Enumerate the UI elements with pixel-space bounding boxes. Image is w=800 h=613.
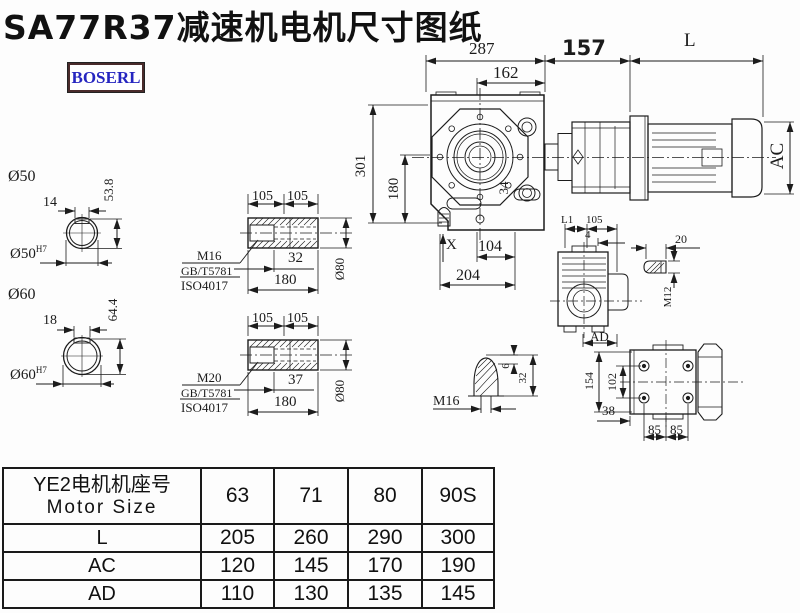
col-71: 71	[274, 468, 348, 524]
dim-shaft2-37: 37	[288, 373, 303, 388]
cell-L-80: 290	[348, 524, 422, 552]
dim-L: L	[684, 31, 696, 50]
table-row-AC: AC 120 145 170 190	[3, 552, 494, 580]
dim-key18: 18	[43, 314, 57, 328]
dim-154: 154	[582, 361, 596, 401]
dim-shaft2-105b: 105	[287, 312, 308, 326]
dim-shaft1-105a: 105	[252, 190, 273, 204]
cell-AD-90s: 145	[422, 580, 494, 608]
table-row-AD: AD 110 130 135 145	[3, 580, 494, 608]
callout-gbt5781-1: GB/T5781	[181, 265, 232, 277]
dim-shaft1-180: 180	[274, 273, 297, 288]
row-label-L: L	[3, 524, 201, 552]
dim-102: 102	[605, 362, 619, 402]
dim-287: 287	[469, 40, 495, 57]
dim-157: 157	[562, 38, 606, 59]
dim-shaft2-o80: Ø80	[332, 371, 346, 411]
callout-plug-m16: M16	[433, 395, 459, 409]
drawing-sheet: SA77R37减速机电机尺寸图纸 BOSERL 287 162 157 L 30…	[0, 0, 800, 613]
callout-m16: M16	[197, 249, 222, 262]
callout-m20: M20	[197, 371, 222, 384]
callout-iso4017-2: ISO4017	[181, 401, 228, 414]
label-bore50-fit: Ø50H7	[10, 245, 47, 262]
table-row-L: L 205 260 290 300	[3, 524, 494, 552]
callout-iso4017-1: ISO4017	[181, 279, 228, 292]
label-bore50: Ø50	[8, 169, 36, 185]
dim-64-4: 64.4	[105, 290, 119, 330]
row-label-AD: AD	[3, 580, 201, 608]
dim-20: 20	[675, 233, 687, 245]
motor-size-table: YE2电机机座号 Motor Size 63 71 80 90S L 205 2…	[2, 467, 495, 609]
col-80: 80	[348, 468, 422, 524]
cell-L-71: 260	[274, 524, 348, 552]
dim-shaft2-105a: 105	[252, 312, 273, 326]
table-header-row: YE2电机机座号 Motor Size 63 71 80 90S	[3, 468, 494, 524]
cell-AC-63: 120	[201, 552, 274, 580]
header-en: Motor Size	[4, 497, 200, 519]
callout-gbt5781-2: GB/T5781	[181, 387, 232, 399]
dim-shaft2-180: 180	[274, 395, 297, 410]
cell-L-63: 205	[201, 524, 274, 552]
dim-shaft1-105b: 105	[287, 190, 308, 204]
cell-AD-80: 135	[348, 580, 422, 608]
dim-AD: AD	[590, 330, 609, 343]
dim-104: 104	[478, 239, 502, 255]
bore60-fit-text: Ø60	[10, 367, 36, 383]
dim-shaft1-32: 32	[288, 251, 303, 266]
page-title: SA77R37减速机电机尺寸图纸	[3, 1, 483, 49]
dim-34: 34	[496, 168, 510, 208]
cell-AC-80: 170	[348, 552, 422, 580]
callout-m12: M12	[661, 277, 675, 317]
dim-162: 162	[493, 64, 519, 81]
cell-AC-71: 145	[274, 552, 348, 580]
col-90s: 90S	[422, 468, 494, 524]
label-X: X	[446, 238, 457, 253]
label-bore60: Ø60	[8, 287, 36, 303]
brand-logo: BOSERL	[68, 63, 144, 92]
dim-204: 204	[456, 268, 480, 284]
cell-AC-90s: 190	[422, 552, 494, 580]
header-cn: YE2电机机座号	[4, 474, 200, 497]
dim-180-vertical: 180	[387, 169, 401, 209]
label-bore60-fit: Ø60H7	[10, 366, 47, 383]
dim-38: 38	[602, 404, 615, 417]
col-63: 63	[201, 468, 274, 524]
dim-85b: 85	[670, 423, 683, 436]
dim-AC: AC	[770, 136, 784, 176]
cell-L-90s: 300	[422, 524, 494, 552]
dim-plug-32: 32	[516, 358, 530, 398]
dim-53-8: 53.8	[101, 170, 115, 210]
bore50-fit-sup: H7	[36, 244, 47, 254]
dim-4: 4	[585, 230, 591, 241]
dim-85a: 85	[648, 423, 661, 436]
bore60-fit-sup: H7	[36, 365, 47, 375]
dim-side-105: 105	[586, 215, 603, 226]
dim-6: 6	[499, 346, 513, 386]
bore50-fit-text: Ø50	[10, 246, 36, 262]
dim-L1: L1	[561, 215, 573, 226]
row-label-AC: AC	[3, 552, 201, 580]
dim-key14: 14	[43, 196, 57, 210]
dim-301: 301	[354, 146, 368, 186]
header-motor-size: YE2电机机座号 Motor Size	[3, 468, 201, 524]
cell-AD-63: 110	[201, 580, 274, 608]
cell-AD-71: 130	[274, 580, 348, 608]
dim-shaft1-o80: Ø80	[332, 249, 346, 289]
